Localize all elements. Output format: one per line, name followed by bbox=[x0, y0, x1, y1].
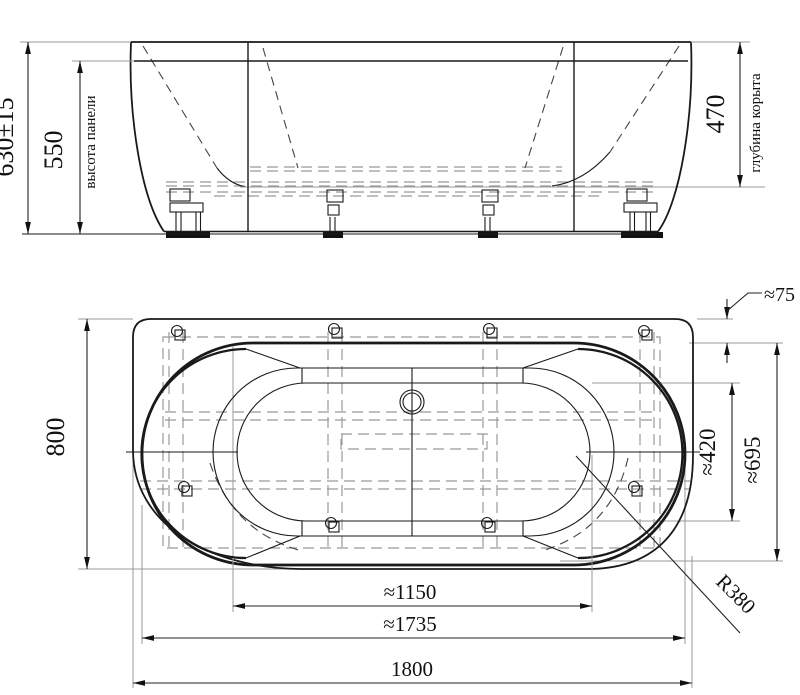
dim-bowl-depth: 470 bbox=[701, 95, 730, 134]
front-outline bbox=[22, 42, 691, 234]
bathtub-drawing: 630±15 550 высота панели 470 глубина кор… bbox=[0, 0, 800, 695]
foot bbox=[484, 324, 498, 339]
dim-bowl-inner-length: ≈1150 bbox=[384, 580, 437, 604]
dim-rim-width: ≈695 bbox=[740, 436, 765, 483]
front-hidden-frame bbox=[166, 167, 656, 196]
leg-group-1 bbox=[166, 189, 210, 238]
front-basin-profile bbox=[143, 46, 765, 187]
dim-overall-height: 630±15 bbox=[0, 97, 19, 176]
foot bbox=[329, 324, 343, 339]
plan-hidden-frame bbox=[140, 332, 690, 553]
dim-panel-height-caption: высота панели bbox=[83, 95, 99, 188]
dim-overall-length: 1800 bbox=[391, 657, 433, 681]
dim-panel-height: 550 bbox=[39, 131, 68, 170]
plan-view: 800 ≈75 ≈420 ≈695 ≈1150 ≈1735 1800 R380 bbox=[41, 284, 795, 688]
dim-corner-radius: R380 bbox=[711, 569, 760, 618]
leg-group-4 bbox=[621, 189, 663, 238]
dim-overall-width: 800 bbox=[41, 418, 70, 457]
tub-rim bbox=[142, 343, 685, 565]
front-view: 630±15 550 высота панели 470 глубина кор… bbox=[0, 42, 765, 238]
dim-rim-offset: ≈75 bbox=[764, 284, 795, 306]
dim-rim-length: ≈1735 bbox=[383, 612, 437, 636]
deck-contour bbox=[133, 319, 693, 569]
dim-bowl-inner-width: ≈420 bbox=[695, 428, 720, 475]
front-dimensions: 630±15 550 высота панели 470 глубина кор… bbox=[0, 42, 764, 234]
dim-bowl-depth-caption: глубина корыта bbox=[748, 73, 764, 173]
basin-contours bbox=[213, 349, 614, 558]
technical-drawing-sheet: 630±15 550 высота панели 470 глубина кор… bbox=[0, 0, 800, 695]
radius-leader bbox=[576, 456, 740, 633]
